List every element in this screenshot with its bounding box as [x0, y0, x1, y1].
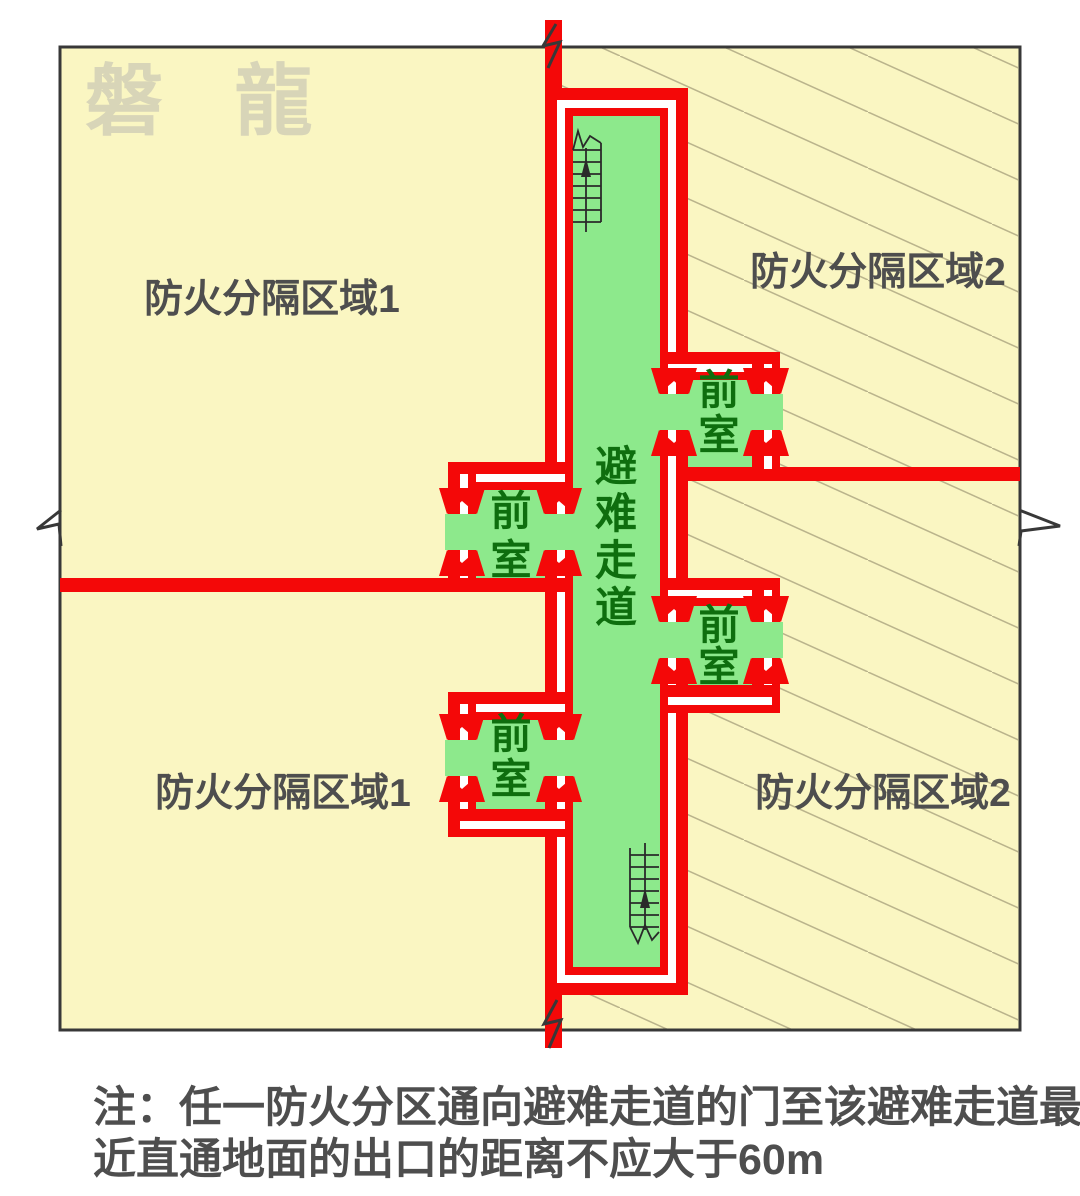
anteroom-label-char: 前	[491, 711, 532, 757]
door-gap	[660, 394, 688, 430]
corridor-label-char: 道	[595, 584, 637, 631]
corridor-label: 避 难 走 道	[595, 443, 637, 631]
zone1-top-label: 防火分隔区域1	[144, 278, 400, 321]
anteroom-label-char: 室	[491, 537, 532, 583]
fire-refuge-corridor-diagram: 磐 龍 防火分隔区域1 防火分隔区域2 防火分隔区域1 防火分隔区域2 前 室 …	[0, 0, 1080, 1196]
anteroom-wall-gap	[668, 697, 772, 705]
watermark: 磐 龍	[85, 58, 339, 145]
door-gap	[445, 514, 476, 550]
corridor-wall-stub-top	[545, 20, 562, 100]
door-gap	[752, 622, 783, 658]
anteroom-label-char: 前	[699, 602, 740, 648]
anteroom-label-char: 前	[491, 488, 532, 534]
zone2-bottom-label: 防火分隔区域2	[755, 772, 1011, 815]
door-gap	[752, 394, 783, 430]
zone2-top-label: 防火分隔区域2	[750, 251, 1006, 294]
door-gap	[660, 622, 688, 658]
corridor-label-char: 走	[595, 537, 637, 584]
fire-wall-right	[688, 467, 1020, 481]
anteroom-label-char: 室	[699, 412, 740, 458]
door-gap	[545, 514, 573, 550]
corridor-label-char: 避	[595, 443, 637, 490]
corridor-label-char: 难	[595, 490, 637, 537]
door-gap	[445, 740, 476, 776]
anteroom-wall-gap	[460, 821, 565, 829]
anteroom-label-char: 前	[699, 367, 740, 413]
note-line-2: 近直通地面的出口的距离不应大于60m	[93, 1136, 824, 1184]
zone1-bottom-label: 防火分隔区域1	[155, 772, 411, 815]
anteroom-label-char: 室	[491, 756, 532, 802]
door-gap	[545, 740, 573, 776]
note-line-1: 注：任一防火分区通向避难走道的门至该避难走道最	[93, 1084, 1080, 1132]
anteroom-label-char: 室	[699, 644, 740, 690]
